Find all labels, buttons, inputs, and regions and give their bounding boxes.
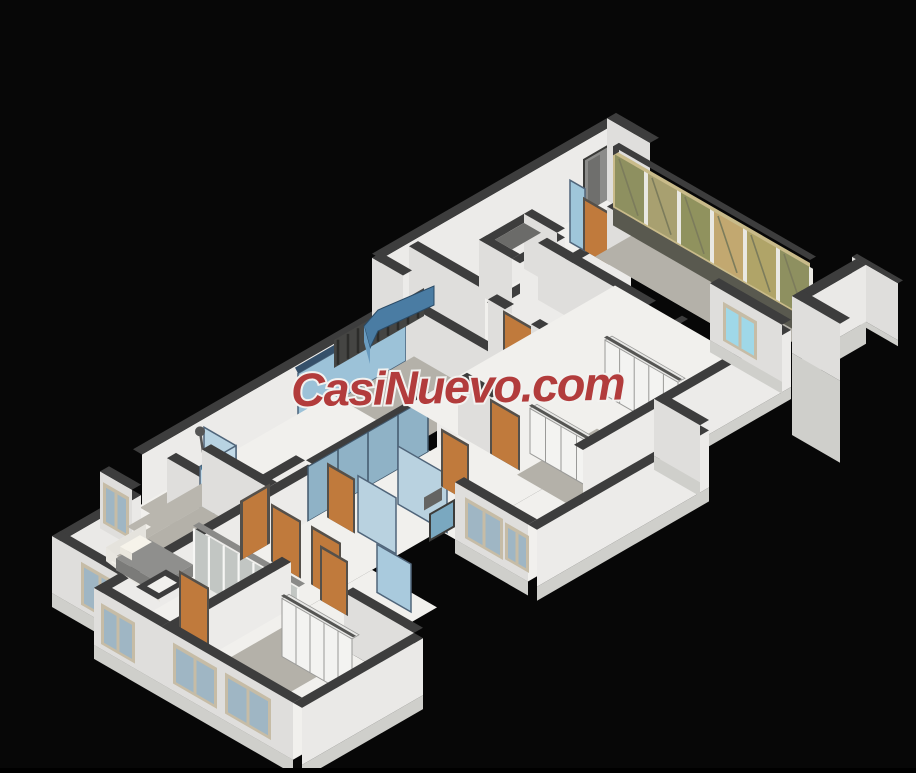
svg-text:CasiNuevo.com: CasiNuevo.com xyxy=(291,356,625,416)
